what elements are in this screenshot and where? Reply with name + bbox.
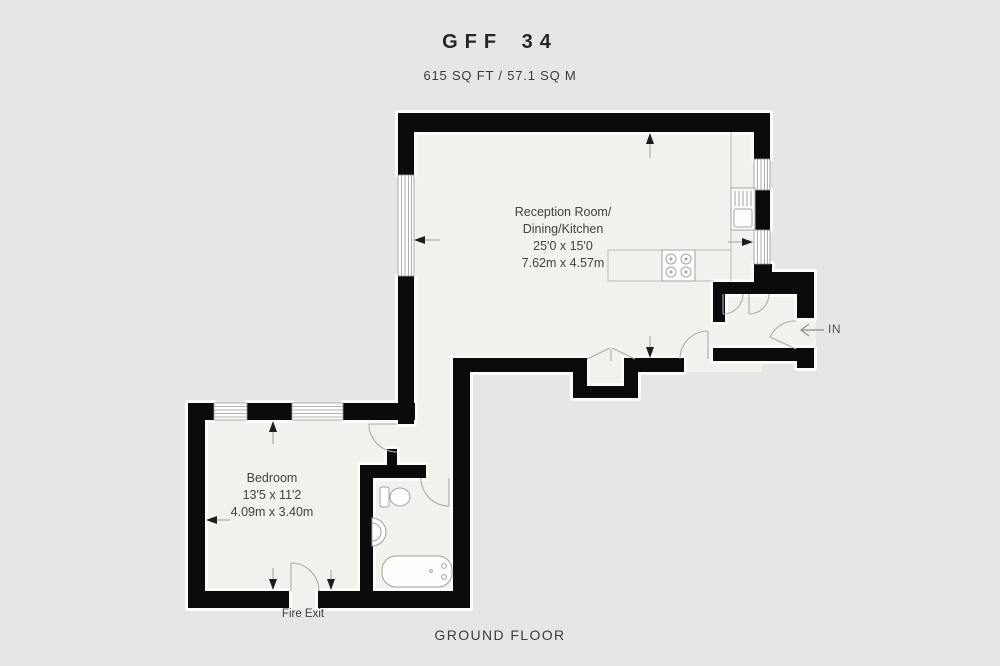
window-icon (754, 230, 770, 264)
window-icon (754, 159, 770, 190)
kitchen-sink-icon (731, 188, 755, 230)
reception-dims-metric: 7.62m x 4.57m (515, 255, 612, 272)
hob-icon (662, 250, 695, 281)
toilet-icon (380, 487, 410, 507)
entrance-label: IN (828, 322, 841, 336)
floor-name-label: GROUND FLOOR (434, 627, 565, 643)
reception-name-line1: Reception Room/ (515, 204, 612, 221)
reception-name-line2: Dining/Kitchen (515, 221, 612, 238)
fire-exit-label: Fire Exit (282, 608, 324, 620)
area-label: 615 SQ FT / 57.1 SQ M (423, 68, 576, 83)
page-title: GFF 34 (442, 31, 558, 54)
room-label-reception: Reception Room/ Dining/Kitchen 25'0 x 15… (515, 204, 612, 272)
bathtub-icon (382, 556, 452, 587)
room-label-bedroom: Bedroom 13'5 x 11'2 4.09m x 3.40m (231, 470, 314, 521)
bedroom-dims-metric: 4.09m x 3.40m (231, 504, 314, 521)
reception-dims-imperial: 25'0 x 15'0 (515, 238, 612, 255)
window-icon (398, 175, 414, 276)
window-icon (292, 403, 343, 420)
window-icon (214, 403, 247, 420)
floor-plan-drawing (0, 0, 1000, 666)
bedroom-name: Bedroom (231, 470, 314, 487)
bedroom-dims-imperial: 13'5 x 11'2 (231, 487, 314, 504)
floor-plan-page: GFF 34 615 SQ FT / 57.1 SQ M Reception R… (0, 0, 1000, 666)
